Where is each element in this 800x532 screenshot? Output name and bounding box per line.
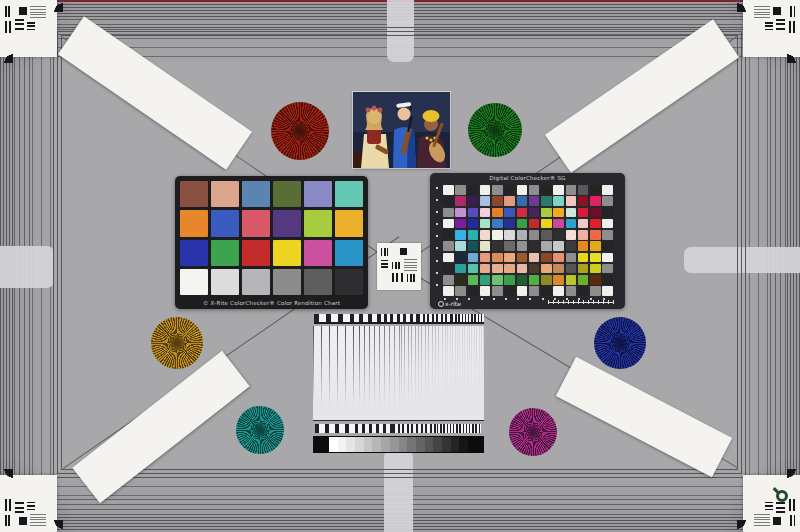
gray-step xyxy=(338,437,347,452)
sg-color-patch xyxy=(492,208,503,218)
sg-color-patch xyxy=(455,230,466,240)
corner-target-card-bottom-left xyxy=(0,475,57,532)
sg-color-patch xyxy=(443,253,454,263)
bar-group xyxy=(789,21,796,34)
sg-color-patch xyxy=(578,196,589,206)
gray-step xyxy=(364,437,373,452)
sg-color-patch xyxy=(468,208,479,218)
sg-color-patch xyxy=(492,286,503,296)
sg-color-patch xyxy=(443,230,454,240)
resolution-unit xyxy=(545,134,546,135)
sg-color-patch xyxy=(517,208,528,218)
bar-group xyxy=(381,260,388,269)
bar-group xyxy=(789,499,796,512)
fan-wedge-icon xyxy=(54,3,63,12)
classic-color-patch xyxy=(335,210,363,236)
sg-color-patch xyxy=(578,275,589,285)
sg-color-patch xyxy=(480,230,491,240)
resolution-unit xyxy=(84,16,85,17)
corner-target-card-top-left xyxy=(0,0,57,57)
sg-color-patch xyxy=(492,253,503,263)
sg-color-patch xyxy=(529,264,540,274)
sg-color-patch xyxy=(553,264,564,274)
fine-text-block xyxy=(30,6,46,19)
classic-color-patch xyxy=(242,269,270,295)
gray-step-wedge xyxy=(313,436,484,453)
sg-color-patch xyxy=(541,253,552,263)
sg-color-patch xyxy=(553,275,564,285)
gray-step xyxy=(372,437,381,452)
sg-color-patch xyxy=(541,286,552,296)
sg-color-patch xyxy=(455,208,466,218)
bar-group xyxy=(5,515,12,526)
sg-color-patch xyxy=(492,185,503,195)
magenta-starburst xyxy=(509,408,557,456)
bar-group xyxy=(5,499,12,512)
bar-group xyxy=(381,248,388,256)
sg-color-patch xyxy=(529,253,540,263)
classic-color-patch xyxy=(211,240,239,266)
sg-color-patch xyxy=(529,275,540,285)
classic-color-patch xyxy=(335,240,363,266)
sg-color-patch xyxy=(541,264,552,274)
sg-color-patch xyxy=(443,264,454,274)
sg-color-patch xyxy=(529,286,540,296)
bar-group xyxy=(15,502,24,512)
sg-color-patch xyxy=(504,275,515,285)
sg-color-patch xyxy=(553,286,564,296)
sg-color-patch xyxy=(504,264,515,274)
sg-color-patch xyxy=(578,286,589,296)
sg-color-patch xyxy=(566,196,577,206)
fine-text-block xyxy=(404,259,417,271)
sg-color-patch xyxy=(590,230,601,240)
classic-color-patch xyxy=(304,210,332,236)
classic-color-patch xyxy=(273,210,301,236)
sg-color-patch xyxy=(529,208,540,218)
sg-color-patch xyxy=(480,196,491,206)
bar-group xyxy=(5,6,12,17)
sg-color-patch xyxy=(529,185,540,195)
sg-color-patch xyxy=(504,241,515,251)
sg-color-patch xyxy=(504,286,515,296)
bar-group xyxy=(789,515,796,526)
colorchecker-sg-chart: Digital ColorChecker® SG x-rite xyxy=(430,173,625,309)
sg-color-patch xyxy=(553,219,564,229)
classic-color-patch xyxy=(211,181,239,207)
colorchecker-classic-caption: © X-Rite ColorChecker® Color Rendition C… xyxy=(175,300,368,306)
colorchecker-classic-chart: © X-Rite ColorChecker® Color Rendition C… xyxy=(175,176,368,309)
sg-color-patch xyxy=(443,275,454,285)
sg-color-patch xyxy=(553,253,564,263)
sg-color-patch xyxy=(602,230,613,240)
sg-row-markers xyxy=(436,187,438,293)
bar-group xyxy=(27,501,35,510)
sg-color-patch xyxy=(541,196,552,206)
sg-color-patch xyxy=(504,230,515,240)
step-wedge-end-cap xyxy=(313,436,329,453)
sg-color-patch xyxy=(578,241,589,251)
sweep-bar-strip-lower xyxy=(315,424,481,433)
sg-color-patch xyxy=(517,230,528,240)
sg-color-patch xyxy=(566,185,577,195)
sg-color-patch xyxy=(590,219,601,229)
sg-color-patch xyxy=(566,230,577,240)
bar-group xyxy=(392,262,400,270)
black-square-marker xyxy=(19,7,27,15)
colorchecker-classic-grid xyxy=(180,181,363,295)
alignment-tab-left xyxy=(0,246,54,288)
bar-group xyxy=(15,19,24,29)
bar-group xyxy=(392,273,405,281)
sg-color-patch xyxy=(578,185,589,195)
gray-step xyxy=(329,437,338,452)
sg-color-patch xyxy=(529,241,540,251)
sg-color-patch xyxy=(566,264,577,274)
classic-color-patch xyxy=(242,240,270,266)
classic-color-patch xyxy=(304,181,332,207)
sg-color-patch xyxy=(468,196,479,206)
sg-color-patch xyxy=(480,286,491,296)
classic-color-patch xyxy=(273,269,301,295)
classic-color-patch xyxy=(242,181,270,207)
sg-color-patch xyxy=(480,275,491,285)
sg-color-patch xyxy=(602,196,613,206)
classic-color-patch xyxy=(304,240,332,266)
fan-wedge-icon xyxy=(54,520,63,529)
sg-color-patch xyxy=(590,208,601,218)
sg-color-patch xyxy=(480,208,491,218)
sg-color-patch xyxy=(517,275,528,285)
sg-color-patch xyxy=(602,253,613,263)
sg-color-patch xyxy=(602,286,613,296)
musicians-photo xyxy=(353,92,450,168)
classic-color-patch xyxy=(180,181,208,207)
classic-color-patch xyxy=(211,210,239,236)
sg-color-patch xyxy=(553,185,564,195)
sg-color-patch xyxy=(602,219,613,229)
resolution-unit xyxy=(84,16,85,17)
bar-group xyxy=(765,501,773,510)
sg-color-patch xyxy=(578,253,589,263)
sg-color-patch xyxy=(455,241,466,251)
classic-color-patch xyxy=(180,210,208,236)
sg-color-patch xyxy=(529,230,540,240)
x-rite-logo: x-rite xyxy=(438,300,461,307)
sg-color-patch xyxy=(492,196,503,206)
sg-color-patch xyxy=(553,208,564,218)
resolution-unit xyxy=(72,467,73,468)
sg-color-patch xyxy=(443,241,454,251)
sg-color-patch xyxy=(541,219,552,229)
black-square-marker xyxy=(400,248,407,255)
resolution-unit xyxy=(72,467,73,468)
black-square-marker xyxy=(773,517,781,525)
classic-color-patch xyxy=(335,181,363,207)
resolution-unit xyxy=(84,16,85,17)
sg-color-patch xyxy=(468,230,479,240)
bar-group xyxy=(765,22,773,31)
sg-color-patch xyxy=(566,275,577,285)
sg-color-patch xyxy=(517,219,528,229)
sg-color-patch xyxy=(468,275,479,285)
sg-color-patch xyxy=(455,286,466,296)
gray-step xyxy=(399,437,408,452)
resolution-unit xyxy=(72,467,73,468)
sg-color-patch xyxy=(504,219,515,229)
bar-group xyxy=(5,21,12,34)
sg-color-patch xyxy=(517,286,528,296)
sg-color-patch xyxy=(541,208,552,218)
sg-color-patch xyxy=(480,219,491,229)
gray-step xyxy=(407,437,416,452)
bar-group xyxy=(407,274,417,282)
sg-color-patch xyxy=(517,253,528,263)
sg-color-patch xyxy=(541,275,552,285)
gray-step xyxy=(346,437,355,452)
resolution-unit xyxy=(545,134,546,135)
sg-color-patch xyxy=(517,185,528,195)
teal-starburst xyxy=(236,406,284,454)
green-starburst xyxy=(468,103,522,157)
fine-text-block xyxy=(754,6,770,19)
gray-step xyxy=(425,437,434,452)
sg-color-patch xyxy=(578,208,589,218)
sg-color-patch xyxy=(566,219,577,229)
bar-group xyxy=(776,502,785,512)
gray-step xyxy=(416,437,425,452)
sg-color-patch xyxy=(492,241,503,251)
fine-text-block xyxy=(30,514,46,527)
bar-group xyxy=(789,6,796,17)
sg-color-patch xyxy=(566,208,577,218)
gray-step xyxy=(390,437,399,452)
sg-color-patch xyxy=(480,241,491,251)
black-square-marker xyxy=(19,517,27,525)
bar-group xyxy=(776,19,785,29)
sg-color-patch xyxy=(455,196,466,206)
step-wedge-end-cap xyxy=(468,436,484,453)
sg-color-patch xyxy=(602,185,613,195)
loupe-icon xyxy=(776,490,788,502)
sg-color-patch xyxy=(541,185,552,195)
sg-color-patch xyxy=(480,253,491,263)
classic-color-patch xyxy=(273,240,301,266)
sg-color-patch xyxy=(480,264,491,274)
sg-color-patch xyxy=(553,230,564,240)
fine-text-block xyxy=(754,514,770,527)
sg-color-patch xyxy=(455,253,466,263)
sg-color-patch xyxy=(468,219,479,229)
classic-color-patch xyxy=(211,269,239,295)
classic-color-patch xyxy=(273,181,301,207)
sg-color-patch xyxy=(590,275,601,285)
sg-color-patch xyxy=(455,185,466,195)
blue-starburst xyxy=(594,317,646,369)
resolution-unit xyxy=(545,134,546,135)
sg-color-patch xyxy=(553,196,564,206)
gray-step xyxy=(459,437,468,452)
sg-color-patch xyxy=(566,286,577,296)
sg-color-patch xyxy=(492,230,503,240)
sg-color-patch xyxy=(443,219,454,229)
sg-color-patch xyxy=(468,264,479,274)
sg-color-patch xyxy=(566,241,577,251)
classic-color-patch xyxy=(242,210,270,236)
colorchecker-sg-title: Digital ColorChecker® SG xyxy=(430,175,625,181)
fan-wedge-icon xyxy=(787,54,796,63)
sg-color-patch xyxy=(468,286,479,296)
colorchecker-sg-grid xyxy=(443,185,613,296)
sg-color-patch xyxy=(602,208,613,218)
sg-color-patch xyxy=(590,185,601,195)
classic-color-patch xyxy=(180,240,208,266)
sg-color-patch xyxy=(492,275,503,285)
sg-color-patch xyxy=(443,196,454,206)
sg-color-patch xyxy=(455,275,466,285)
classic-color-patch xyxy=(304,269,332,295)
sg-color-patch xyxy=(517,241,528,251)
sg-color-patch xyxy=(517,264,528,274)
fan-wedge-icon xyxy=(4,469,13,478)
sweep-bar-strip-top xyxy=(314,314,484,324)
sg-color-patch xyxy=(517,196,528,206)
gray-steps-row xyxy=(329,437,468,452)
bar-group xyxy=(27,22,35,31)
sg-color-patch xyxy=(480,185,491,195)
classic-color-patch xyxy=(180,269,208,295)
center-resolution-target xyxy=(377,243,421,290)
sg-color-patch xyxy=(541,230,552,240)
sg-color-patch xyxy=(578,264,589,274)
gray-step xyxy=(381,437,390,452)
sg-color-patch xyxy=(578,230,589,240)
fan-wedge-icon xyxy=(4,54,13,63)
sg-color-patch xyxy=(578,219,589,229)
sg-color-patch xyxy=(504,253,515,263)
sg-color-patch xyxy=(590,253,601,263)
sg-color-patch xyxy=(566,253,577,263)
sg-color-patch xyxy=(443,185,454,195)
sg-color-patch xyxy=(602,264,613,274)
sg-color-patch xyxy=(443,286,454,296)
sg-color-patch xyxy=(529,196,540,206)
musicians-photo-art xyxy=(353,92,450,168)
sg-color-patch xyxy=(504,196,515,206)
sg-color-patch xyxy=(541,241,552,251)
fan-wedge-icon xyxy=(787,469,796,478)
corner-target-card-bottom-right xyxy=(743,475,800,532)
frequency-sweep-panel xyxy=(313,326,484,421)
gray-step xyxy=(433,437,442,452)
sg-color-patch xyxy=(529,219,540,229)
classic-color-patch xyxy=(335,269,363,295)
sg-color-patch xyxy=(443,208,454,218)
resolution-unit xyxy=(545,134,546,135)
sg-color-patch xyxy=(602,241,613,251)
sg-color-patch xyxy=(455,219,466,229)
gray-step xyxy=(355,437,364,452)
sg-ruler-scale xyxy=(548,300,614,304)
sg-color-patch xyxy=(602,275,613,285)
gray-step xyxy=(442,437,451,452)
resolution-unit xyxy=(72,467,73,468)
red-starburst xyxy=(271,102,329,160)
fan-wedge-icon xyxy=(737,520,746,529)
black-square-marker xyxy=(773,7,781,15)
sg-color-patch xyxy=(590,241,601,251)
sg-color-patch xyxy=(468,241,479,251)
sg-color-patch xyxy=(468,253,479,263)
resolution-unit xyxy=(84,16,85,17)
sg-color-patch xyxy=(504,208,515,218)
gray-step xyxy=(451,437,460,452)
sg-color-patch xyxy=(468,185,479,195)
fan-wedge-icon xyxy=(737,3,746,12)
sg-color-patch xyxy=(553,241,564,251)
sg-color-patch xyxy=(492,219,503,229)
sg-color-patch xyxy=(590,196,601,206)
gold-starburst xyxy=(151,317,203,369)
sg-color-patch xyxy=(504,185,515,195)
sg-color-patch xyxy=(492,264,503,274)
sg-color-patch xyxy=(455,264,466,274)
corner-target-card-top-right xyxy=(743,0,800,57)
sg-color-patch xyxy=(590,264,601,274)
iso-test-chart-scene: © X-Rite ColorChecker® Color Rendition C… xyxy=(0,0,800,532)
sg-color-patch xyxy=(590,286,601,296)
